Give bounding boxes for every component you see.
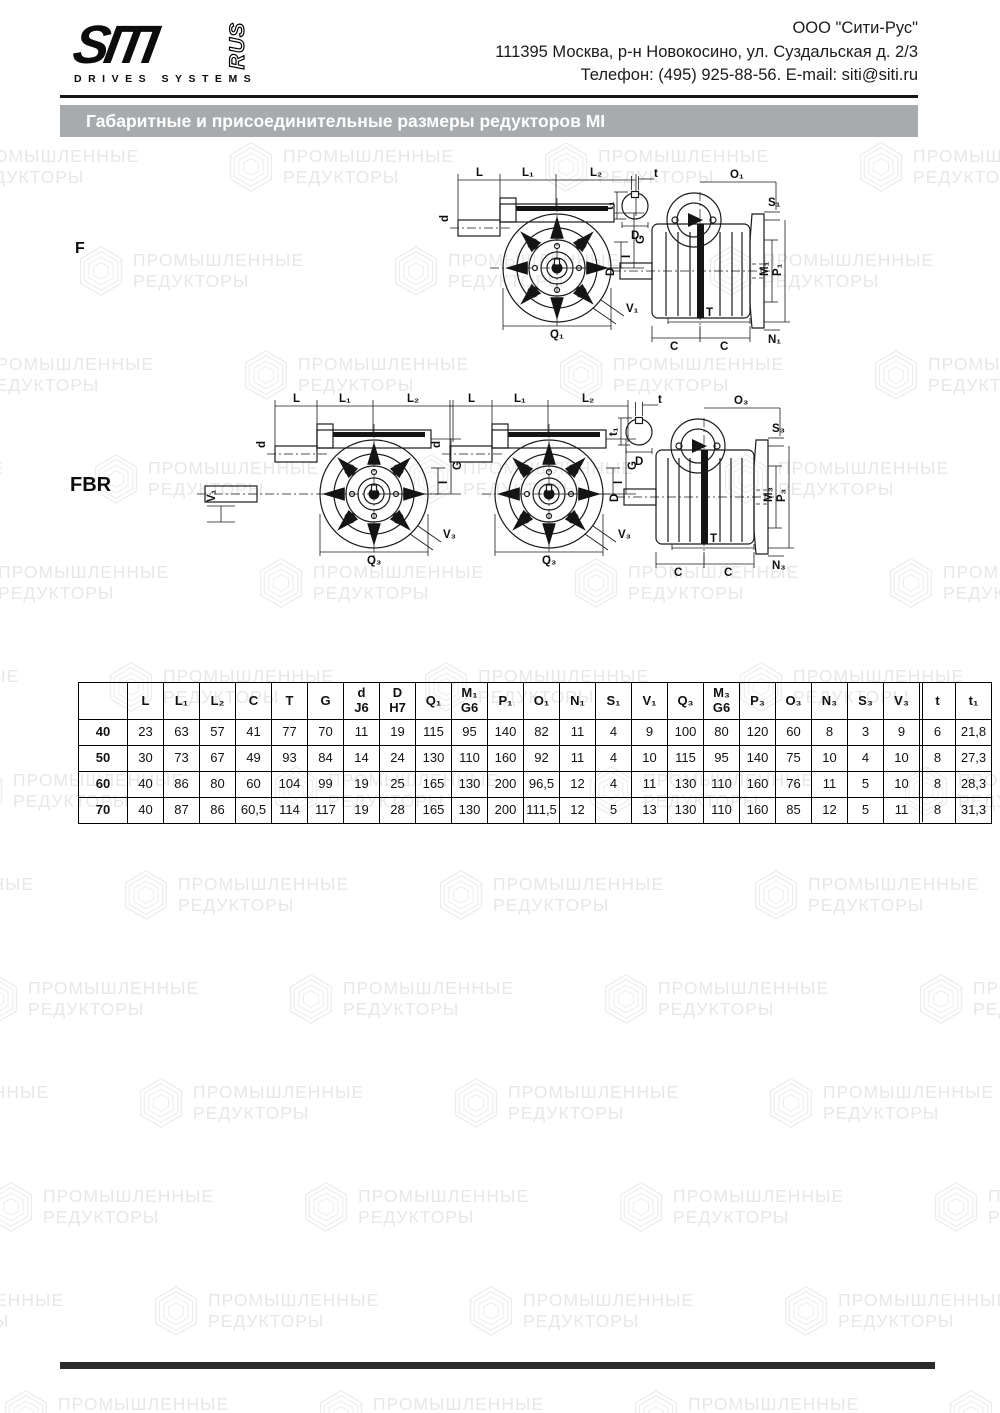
table-cell: 160 xyxy=(740,772,776,798)
watermark-text: ПРОМЫШЛЕННЫЕРЕДУКТОРЫ xyxy=(913,138,1000,188)
svg-text:L₁: L₁ xyxy=(522,167,534,179)
table-cell: 95 xyxy=(452,720,488,746)
gearbox-side-outline xyxy=(620,193,764,328)
svg-text:L: L xyxy=(476,167,483,179)
catalog-page: ПРОМЫШЛЕННЫЕРЕДУКТОРЫПРОМЫШЛЕННЫЕРЕДУКТО… xyxy=(0,0,1000,1413)
watermark-text: ПРОМЫШЛЕННЫЕРЕДУКТОРЫ xyxy=(298,346,469,396)
table-header-cell: N₁ xyxy=(560,683,596,720)
company-info: ООО "Сити-Рус" 111395 Москва, р-н Новоко… xyxy=(495,17,918,88)
table-cell: 73 xyxy=(164,746,200,772)
keyway-detail: t t₁ D xyxy=(608,394,662,468)
table-cell: 30 xyxy=(128,746,164,772)
watermark-text: ПРОМЫШЛЕННЫЕРЕДУКТОРЫ xyxy=(343,970,514,1020)
table-cell: 10 xyxy=(812,746,848,772)
table-header-cell: L₂ xyxy=(200,683,236,720)
hexagon-watermark-icon xyxy=(135,1074,187,1132)
table-row: 7040878660,51141171928165130200111,51251… xyxy=(79,798,992,824)
svg-text:L₁: L₁ xyxy=(514,393,526,405)
watermark-text: ПРОМЫШЛЕННЫЕРЕДУКТОРЫ xyxy=(943,554,1000,604)
hexagon-watermark-icon xyxy=(0,762,7,820)
watermark-text: ПРОМЫШЛЕННЫЕРЕДУКТОРЫ xyxy=(493,866,664,916)
table-cell: 5 xyxy=(848,798,884,824)
fbr-side-view-drawing: t t₁ D xyxy=(612,392,802,577)
table-cell: 13 xyxy=(632,798,668,824)
hexagon-watermark-icon xyxy=(855,138,907,196)
table-cell: 86 xyxy=(164,772,200,798)
hexagon-watermark-icon xyxy=(300,1178,352,1236)
hexagon-watermark-icon xyxy=(630,1386,682,1413)
watermark: ПРОМЫШЛЕННЫЕРЕДУКТОРЫ xyxy=(225,138,454,196)
hexagon-watermark-icon xyxy=(450,1074,502,1132)
dimensions-table-wrapper: LL₁L₂CTGd J6D H7Q₁M₁ G6P₁O₁N₁S₁V₁Q₃M₃ G6… xyxy=(78,682,992,824)
svg-text:D: D xyxy=(635,456,643,468)
svg-text:t: t xyxy=(654,168,658,180)
watermark-text: ПРОМЫШЛЕННЫЕРЕДУКТОРЫ xyxy=(193,1074,364,1124)
table-header-cell: O₁ xyxy=(524,683,560,720)
watermark: ПРОМЫШЛЕННЫЕРЕДУКТОРЫ xyxy=(75,242,304,300)
table-cell: 8 xyxy=(920,798,956,824)
watermark: ПРОМЫШЛЕННЫЕРЕДУКТОРЫ xyxy=(0,1386,229,1413)
gearbox-front-outline xyxy=(450,424,606,548)
f-side-view-drawing: t t₁ D xyxy=(608,166,798,351)
table-header-cell: V₁ xyxy=(632,683,668,720)
table-cell: 24 xyxy=(380,746,416,772)
watermark-text: ПРОМЫШЛЕННЫЕРЕДУКТОРЫ xyxy=(0,1074,49,1124)
table-header-cell: D H7 xyxy=(380,683,416,720)
table-cell: 96,5 xyxy=(524,772,560,798)
watermark-text: ПРОМЫШЛЕННЫЕРЕДУКТОРЫ xyxy=(928,346,1000,396)
watermark-text: ПРОМЫШЛЕННЫЕРЕДУКТОРЫ xyxy=(0,1282,64,1332)
watermark-text: ПРОМЫШЛЕННЫЕРЕДУКТОРЫ xyxy=(658,970,829,1020)
watermark-text: ПРОМЫШЛЕННЫЕРЕДУКТОРЫ xyxy=(688,1386,859,1413)
svg-text:S₁: S₁ xyxy=(768,197,781,209)
table-cell: 8 xyxy=(920,746,956,772)
watermark: ПРОМЫШЛЕННЫЕРЕДУКТОРЫ xyxy=(300,1178,529,1236)
table-cell: 130 xyxy=(452,798,488,824)
watermark: ПРОМЫШЛЕННЫЕРЕДУКТОРЫ xyxy=(930,1178,1000,1236)
table-cell: 14 xyxy=(344,746,380,772)
table-cell: 60 xyxy=(776,720,812,746)
svg-text:d: d xyxy=(439,215,451,222)
watermark-text: ПРОМЫШЛЕННЫЕРЕДУКТОРЫ xyxy=(178,866,349,916)
table-header-cell: S₃ xyxy=(848,683,884,720)
table-cell: 92 xyxy=(524,746,560,772)
table-cell: 11 xyxy=(812,772,848,798)
table-cell: 115 xyxy=(668,746,704,772)
table-cell: 63 xyxy=(164,720,200,746)
table-cell: 104 xyxy=(272,772,308,798)
watermark: ПРОМЫШЛЕННЫЕРЕДУКТОРЫ xyxy=(870,346,1000,404)
svg-text:Q₃: Q₃ xyxy=(367,555,381,567)
table-cell: 165 xyxy=(416,772,452,798)
table-cell: 160 xyxy=(488,746,524,772)
table-header-cell: G xyxy=(308,683,344,720)
svg-text:Q₁: Q₁ xyxy=(550,329,564,341)
table-cell: 6 xyxy=(920,720,956,746)
svg-text:N₃: N₃ xyxy=(772,560,786,572)
table-cell: 110 xyxy=(704,772,740,798)
table-cell: 8 xyxy=(812,720,848,746)
table-cell: 12 xyxy=(812,798,848,824)
table-header-cell: L xyxy=(128,683,164,720)
table-header-cell: d J6 xyxy=(344,683,380,720)
table-cell: 11 xyxy=(884,798,920,824)
svg-text:d: d xyxy=(256,441,268,448)
table-cell: 160 xyxy=(740,798,776,824)
table-cell: 12 xyxy=(560,798,596,824)
row-header-size: 50 xyxy=(79,746,128,772)
table-row: 4023635741777011191159514082114910080120… xyxy=(79,720,992,746)
table-cell: 9 xyxy=(632,720,668,746)
watermark: ПРОМЫШЛЕННЫЕРЕДУКТОРЫ xyxy=(0,1282,64,1340)
hexagon-watermark-icon xyxy=(120,866,172,924)
table-outer-border-line xyxy=(922,682,923,822)
table-row: 5030736749938414241301101609211410115951… xyxy=(79,746,992,772)
table-header-cell: V₃ xyxy=(884,683,920,720)
table-cell: 11 xyxy=(632,772,668,798)
watermark-text: ПРОМЫШЛЕННЫЕРЕДУКТОРЫ xyxy=(673,1178,844,1228)
table-cell: 3 xyxy=(848,720,884,746)
table-cell: 11 xyxy=(560,746,596,772)
table-cell: 114 xyxy=(272,798,308,824)
table-cell: 140 xyxy=(740,746,776,772)
watermark: ПРОМЫШЛЕННЫЕРЕДУКТОРЫ xyxy=(0,1074,49,1132)
hexagon-watermark-icon xyxy=(600,970,652,1028)
table-cell: 77 xyxy=(272,720,308,746)
table-header-cell: t₁ xyxy=(956,683,992,720)
svg-text:C: C xyxy=(674,567,682,579)
table-header-cell: S₁ xyxy=(596,683,632,720)
table-cell: 85 xyxy=(776,798,812,824)
svg-text:C: C xyxy=(720,341,728,353)
table-cell: 27,3 xyxy=(956,746,992,772)
table-cell: 80 xyxy=(200,772,236,798)
table-header-cell: N₃ xyxy=(812,683,848,720)
watermark: ПРОМЫШЛЕННЫЕРЕДУКТОРЫ xyxy=(285,970,514,1028)
table-header-cell: T xyxy=(272,683,308,720)
watermark: ПРОМЫШЛЕННЫЕРЕДУКТОРЫ xyxy=(915,970,1000,1028)
hexagon-watermark-icon xyxy=(930,1178,982,1236)
watermark: ПРОМЫШЛЕННЫЕРЕДУКТОРЫ xyxy=(600,970,829,1028)
table-cell: 95 xyxy=(704,746,740,772)
table-header-cell: M₁ G6 xyxy=(452,683,488,720)
table-cell: 5 xyxy=(848,772,884,798)
table-cell: 28,3 xyxy=(956,772,992,798)
table-cell: 117 xyxy=(308,798,344,824)
section-title-bar: Габаритные и присоединительные размеры р… xyxy=(60,105,918,137)
watermark-text: ПРОМЫШЛЕННЫЕРЕДУКТОРЫ xyxy=(0,138,139,188)
svg-text:t₁: t₁ xyxy=(604,201,616,210)
watermark-text: ПРОМЫШЛЕННЫЕРЕДУКТОРЫ xyxy=(613,346,784,396)
table-cell: 110 xyxy=(704,798,740,824)
watermark-text: ПРОМЫШЛЕННЫЕРЕДУКТОРЫ xyxy=(973,970,1000,1020)
watermark-text: ПРОМЫШЛЕННЫЕРЕДУКТОРЫ xyxy=(133,242,304,292)
svg-text:P₃: P₃ xyxy=(776,489,788,502)
watermark: ПРОМЫШЛЕННЫЕРЕДУКТОРЫ xyxy=(0,450,4,508)
dimension-labels: L L₁ L₂ d G I Q₃ V₃ xyxy=(431,393,639,567)
table-cell: 100 xyxy=(668,720,704,746)
hexagon-watermark-icon xyxy=(390,242,442,300)
watermark: ПРОМЫШЛЕННЫЕРЕДУКТОРЫ xyxy=(0,346,154,404)
svg-text:T: T xyxy=(706,307,713,319)
table-cell: 4 xyxy=(596,746,632,772)
watermark: ПРОМЫШЛЕННЫЕРЕДУКТОРЫ xyxy=(450,1074,679,1132)
watermark-text: ПРОМЫШЛЕННЫЕРЕДУКТОРЫ xyxy=(358,1178,529,1228)
watermark: ПРОМЫШЛЕННЫЕРЕДУКТОРЫ xyxy=(0,970,199,1028)
table-header-cell: O₃ xyxy=(776,683,812,720)
watermark-text: ПРОМЫШЛЕННЫЕРЕДУКТОРЫ xyxy=(0,346,154,396)
company-address: 111395 Москва, р-н Новокосино, ул. Сузда… xyxy=(495,41,918,65)
company-contacts: Телефон: (495) 925-88-56. E-mail: siti@s… xyxy=(495,64,918,88)
watermark: ПРОМЫШЛЕННЫЕРЕДУКТОРЫ xyxy=(0,554,169,612)
hexagon-watermark-icon xyxy=(0,1178,37,1236)
company-name: ООО "Сити-Рус" xyxy=(495,17,918,41)
table-cell: 200 xyxy=(488,798,524,824)
footer-bar xyxy=(60,1362,935,1369)
table-cell: 41 xyxy=(236,720,272,746)
watermark: ПРОМЫШЛЕННЫЕРЕДУКТОРЫ xyxy=(315,1386,544,1413)
table-cell: 28 xyxy=(380,798,416,824)
siti-logo-text: SITI xyxy=(70,20,158,70)
header-divider xyxy=(60,95,918,98)
siti-logo-rus: RUS xyxy=(226,22,250,69)
table-row: 604086806010499192516513020096,512411130… xyxy=(79,772,992,798)
watermark: ПРОМЫШЛЕННЫЕРЕДУКТОРЫ xyxy=(885,554,1000,612)
svg-text:D: D xyxy=(609,494,621,502)
hexagon-watermark-icon xyxy=(750,866,802,924)
hexagon-watermark-icon xyxy=(225,138,277,196)
watermark: ПРОМЫШЛЕННЫЕРЕДУКТОРЫ xyxy=(780,1282,1000,1340)
svg-text:O₁: O₁ xyxy=(730,169,744,181)
hexagon-watermark-icon xyxy=(870,346,922,404)
table-header-cell: C xyxy=(236,683,272,720)
svg-text:O₃: O₃ xyxy=(734,395,748,407)
table-header-cell: P₁ xyxy=(488,683,524,720)
table-cell: 76 xyxy=(776,772,812,798)
keyway-detail: t t₁ D xyxy=(604,168,658,242)
svg-text:L: L xyxy=(468,393,475,405)
table-cell: 4 xyxy=(848,746,884,772)
table-cell: 25 xyxy=(380,772,416,798)
table-cell: 21,8 xyxy=(956,720,992,746)
table-cell: 5 xyxy=(596,798,632,824)
watermark: ПРОМЫШЛЕННЫЕРЕДУКТОРЫ xyxy=(150,1282,379,1340)
table-cell: 19 xyxy=(344,772,380,798)
watermark-text: ПРОМЫШЛЕННЫЕРЕДУКТОРЫ xyxy=(208,1282,379,1332)
svg-text:V₁: V₁ xyxy=(206,489,218,502)
table-cell: 40 xyxy=(128,772,164,798)
table-cell: 84 xyxy=(308,746,344,772)
watermark: ПРОМЫШЛЕННЫЕРЕДУКТОРЫ xyxy=(630,1386,859,1413)
svg-text:L: L xyxy=(293,393,300,405)
watermark: ПРОМЫШЛЕННЫЕРЕДУКТОРЫ xyxy=(120,866,349,924)
hexagon-watermark-icon xyxy=(435,866,487,924)
watermark: ПРОМЫШЛЕННЫЕРЕДУКТОРЫ xyxy=(135,1074,364,1132)
table-cell: 10 xyxy=(632,746,668,772)
table-cell: 11 xyxy=(560,720,596,746)
svg-text:L₂: L₂ xyxy=(407,393,419,405)
page-title: Габаритные и присоединительные размеры р… xyxy=(60,105,918,137)
svg-text:C: C xyxy=(724,567,732,579)
watermark-text: ПРОМЫШЛЕННЫЕРЕДУКТОРЫ xyxy=(808,866,979,916)
row-header-size: 40 xyxy=(79,720,128,746)
hexagon-watermark-icon xyxy=(150,1282,202,1340)
table-cell: 115 xyxy=(416,720,452,746)
watermark-text: ПРОМЫШЛЕННЫЕРЕДУКТОРЫ xyxy=(58,1386,229,1413)
hexagon-watermark-icon xyxy=(315,1386,367,1413)
hexagon-watermark-icon xyxy=(0,1386,52,1413)
watermark: ПРОМЫШЛЕННЫЕРЕДУКТОРЫ xyxy=(0,866,34,924)
row-header-size: 60 xyxy=(79,772,128,798)
table-cell: 111,5 xyxy=(524,798,560,824)
hexagon-watermark-icon xyxy=(0,970,22,1028)
watermark-text: ПРОМЫШЛЕННЫЕРЕДУКТОРЫ xyxy=(0,554,169,604)
watermark-text: ПРОМЫШЛЕННЫЕРЕДУКТОРЫ xyxy=(988,1178,1000,1228)
table-header-cell: Q₃ xyxy=(668,683,704,720)
svg-text:Q₃: Q₃ xyxy=(542,555,556,567)
watermark: ПРОМЫШЛЕННЫЕРЕДУКТОРЫ xyxy=(0,138,139,196)
svg-text:S₃: S₃ xyxy=(772,423,785,435)
table-cell: 40 xyxy=(128,798,164,824)
siti-logo: SITI RUS DRIVES SYSTEMS xyxy=(74,20,264,85)
table-cell: 140 xyxy=(488,720,524,746)
watermark-text: ПРОМЫШЛЕННЫЕРЕДУКТОРЫ xyxy=(0,866,34,916)
table-cell: 4 xyxy=(596,720,632,746)
table-cell: 93 xyxy=(272,746,308,772)
table-cell: 10 xyxy=(884,746,920,772)
table-cell: 60 xyxy=(236,772,272,798)
table-cell: 130 xyxy=(452,772,488,798)
dimension-lines xyxy=(450,400,636,556)
watermark-text: ПРОМЫШЛЕННЫЕРЕДУКТОРЫ xyxy=(43,1178,214,1228)
table-cell: 87 xyxy=(164,798,200,824)
table-cell: 80 xyxy=(704,720,740,746)
watermark: ПРОМЫШЛЕННЫЕРЕДУКТОРЫ xyxy=(615,1178,844,1236)
table-header-cell: P₃ xyxy=(740,683,776,720)
watermark: ПРОМЫШЛЕННЫЕРЕДУКТОРЫ xyxy=(0,658,19,716)
table-header-cell: t xyxy=(920,683,956,720)
svg-text:P₁: P₁ xyxy=(772,263,784,276)
svg-text:C: C xyxy=(670,341,678,353)
table-cell: 10 xyxy=(884,772,920,798)
svg-text:L₁: L₁ xyxy=(339,393,351,405)
watermark: ПРОМЫШЛЕННЫЕРЕДУКТОРЫ xyxy=(765,1074,994,1132)
watermark: ПРОМЫШЛЕННЫЕРЕДУКТОРЫ xyxy=(855,138,1000,196)
table-cell: 23 xyxy=(128,720,164,746)
table-cell: 31,3 xyxy=(956,798,992,824)
version-label-fbr: FBR xyxy=(70,474,111,497)
watermark-text: ПРОМЫШЛЕННЫЕРЕДУКТОРЫ xyxy=(28,970,199,1020)
table-cell: 200 xyxy=(488,772,524,798)
table-cell: 82 xyxy=(524,720,560,746)
svg-text:L₂: L₂ xyxy=(590,167,602,179)
table-cell: 130 xyxy=(668,772,704,798)
table-cell: 12 xyxy=(560,772,596,798)
table-cell: 75 xyxy=(776,746,812,772)
table-cell: 9 xyxy=(884,720,920,746)
table-cell: 8 xyxy=(920,772,956,798)
svg-text:L₂: L₂ xyxy=(582,393,594,405)
table-header-cell: L₁ xyxy=(164,683,200,720)
watermark-text: ПРОМЫШЛЕННЫЕРЕДУКТОРЫ xyxy=(778,450,949,500)
gearbox-front-outline xyxy=(458,198,614,322)
svg-text:T: T xyxy=(710,533,717,545)
watermark: ПРОМЫШЛЕННЫЕРЕДУКТОРЫ xyxy=(435,866,664,924)
table-cell: 130 xyxy=(668,798,704,824)
watermark-text: ПРОМЫШЛЕННЫЕРЕДУКТОРЫ xyxy=(508,1074,679,1124)
watermark: ПРОМЫШЛЕННЫЕРЕДУКТОРЫ xyxy=(750,866,979,924)
hexagon-watermark-icon xyxy=(285,970,337,1028)
table-header-cell: M₃ G6 xyxy=(704,683,740,720)
table-cell: 165 xyxy=(416,798,452,824)
table-cell: 70 xyxy=(308,720,344,746)
svg-text:M₃: M₃ xyxy=(763,487,775,502)
table-cell: 49 xyxy=(236,746,272,772)
svg-text:D: D xyxy=(605,268,617,276)
table-cell: 11 xyxy=(344,720,380,746)
table-cell: 67 xyxy=(200,746,236,772)
table-cell: 60,5 xyxy=(236,798,272,824)
table-cell: 57 xyxy=(200,720,236,746)
table-cell: 4 xyxy=(596,772,632,798)
table-cell: 110 xyxy=(452,746,488,772)
table-cell: 86 xyxy=(200,798,236,824)
svg-text:t: t xyxy=(658,394,662,406)
table-header-cell xyxy=(79,683,128,720)
version-label-f: F xyxy=(75,240,85,258)
watermark: ПРОМЫШЛЕННЫЕРЕДУКТОРЫ xyxy=(465,1282,694,1340)
watermark: ПРОМЫШЛЕННЫЕРЕДУКТОРЫ xyxy=(0,1178,214,1236)
row-header-size: 70 xyxy=(79,798,128,824)
dimensions-table: LL₁L₂CTGd J6D H7Q₁M₁ G6P₁O₁N₁S₁V₁Q₃M₃ G6… xyxy=(78,682,992,824)
watermark-text: ПРОМЫШЛЕННЫЕРЕДУКТОРЫ xyxy=(0,658,19,708)
watermark-text: ПРОМЫШЛЕННЫЕРЕДУКТОРЫ xyxy=(373,1386,544,1413)
watermark-text: ПРОМЫШЛЕННЫЕРЕДУКТОРЫ xyxy=(523,1282,694,1332)
table-header-cell: Q₁ xyxy=(416,683,452,720)
hexagon-watermark-icon xyxy=(615,1178,667,1236)
svg-text:N₁: N₁ xyxy=(768,334,781,346)
watermark-text: ПРОМЫШЛЕННЫЕРЕДУКТОРЫ xyxy=(823,1074,994,1124)
hexagon-watermark-icon xyxy=(780,1282,832,1340)
table-cell: 19 xyxy=(344,798,380,824)
svg-text:M₁: M₁ xyxy=(759,261,771,276)
table-cell: 19 xyxy=(380,720,416,746)
watermark: ПРОМЫШЛЕННЫЕРЕДУКТОРЫ xyxy=(945,1386,1000,1413)
watermark-text: ПРОМЫШЛЕННЫЕРЕДУКТОРЫ xyxy=(283,138,454,188)
table-cell: 120 xyxy=(740,720,776,746)
svg-text:d: d xyxy=(431,441,443,448)
watermark-text: ПРОМЫШЛЕННЫЕРЕДУКТОРЫ xyxy=(0,450,4,500)
hexagon-watermark-icon xyxy=(885,554,937,612)
gearbox-side-outline xyxy=(624,419,768,554)
hexagon-watermark-icon xyxy=(945,1386,997,1413)
table-cell: 130 xyxy=(416,746,452,772)
watermark-text: ПРОМЫШЛЕННЫЕРЕДУКТОРЫ xyxy=(838,1282,1000,1332)
hexagon-watermark-icon xyxy=(465,1282,517,1340)
hexagon-watermark-icon xyxy=(915,970,967,1028)
table-cell: 99 xyxy=(308,772,344,798)
svg-text:t₁: t₁ xyxy=(608,427,620,436)
hexagon-watermark-icon xyxy=(765,1074,817,1132)
svg-text:D: D xyxy=(631,230,639,242)
